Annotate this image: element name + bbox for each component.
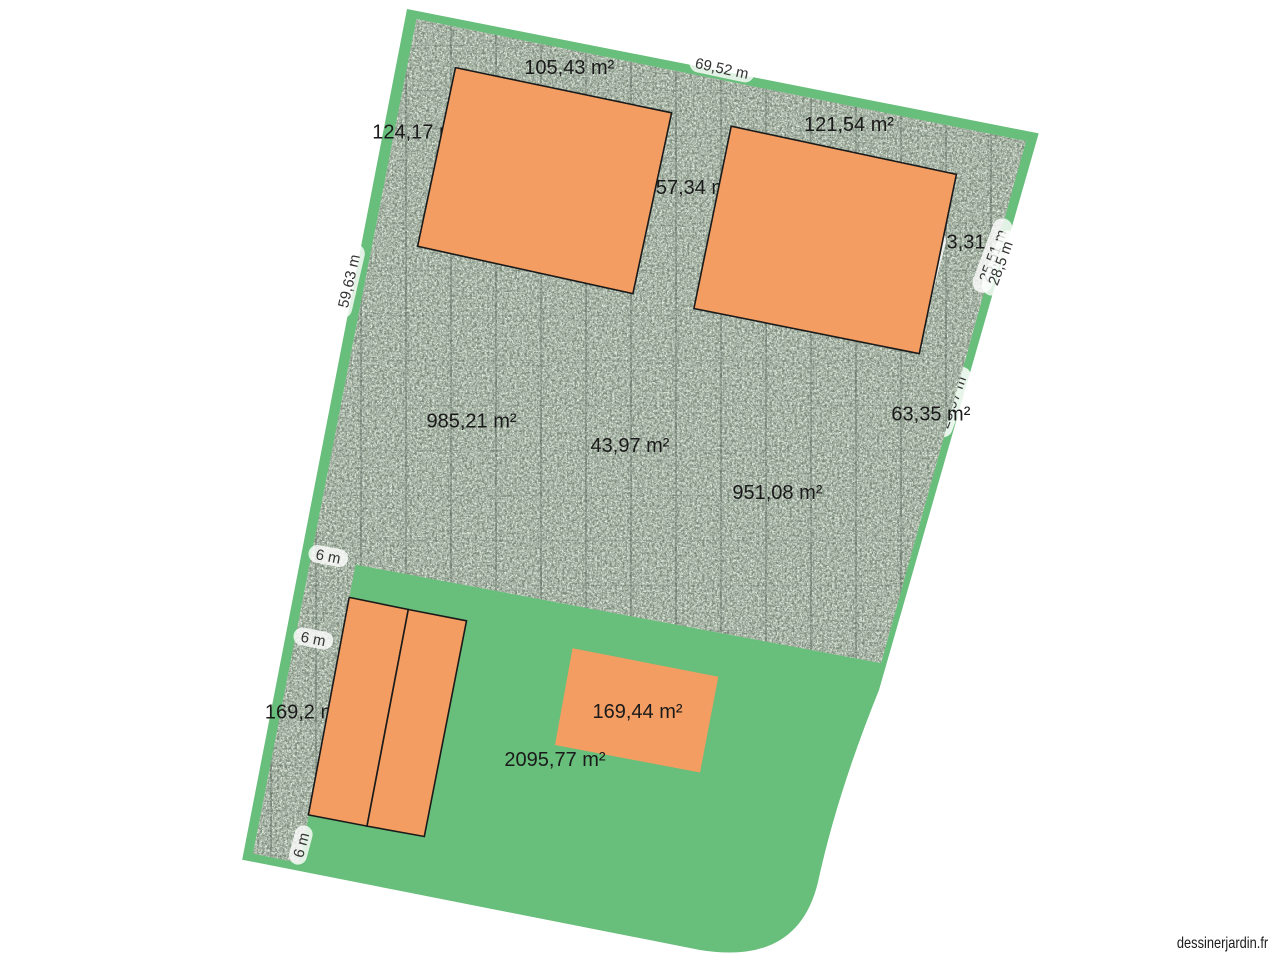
svg-text:3,31: 3,31: [947, 232, 986, 254]
svg-text:43,97 m²: 43,97 m²: [591, 435, 670, 457]
svg-text:169,44 m²: 169,44 m²: [592, 701, 682, 723]
svg-text:dessinerjardin.fr: dessinerjardin.fr: [1177, 935, 1269, 952]
svg-text:63,35 m²: 63,35 m²: [891, 404, 970, 426]
svg-text:121,54 m²: 121,54 m²: [804, 114, 894, 136]
svg-text:2095,77 m²: 2095,77 m²: [504, 749, 606, 771]
svg-text:985,21 m²: 985,21 m²: [426, 411, 516, 433]
svg-text:105,43 m²: 105,43 m²: [524, 57, 614, 79]
svg-text:951,08 m²: 951,08 m²: [732, 482, 822, 504]
